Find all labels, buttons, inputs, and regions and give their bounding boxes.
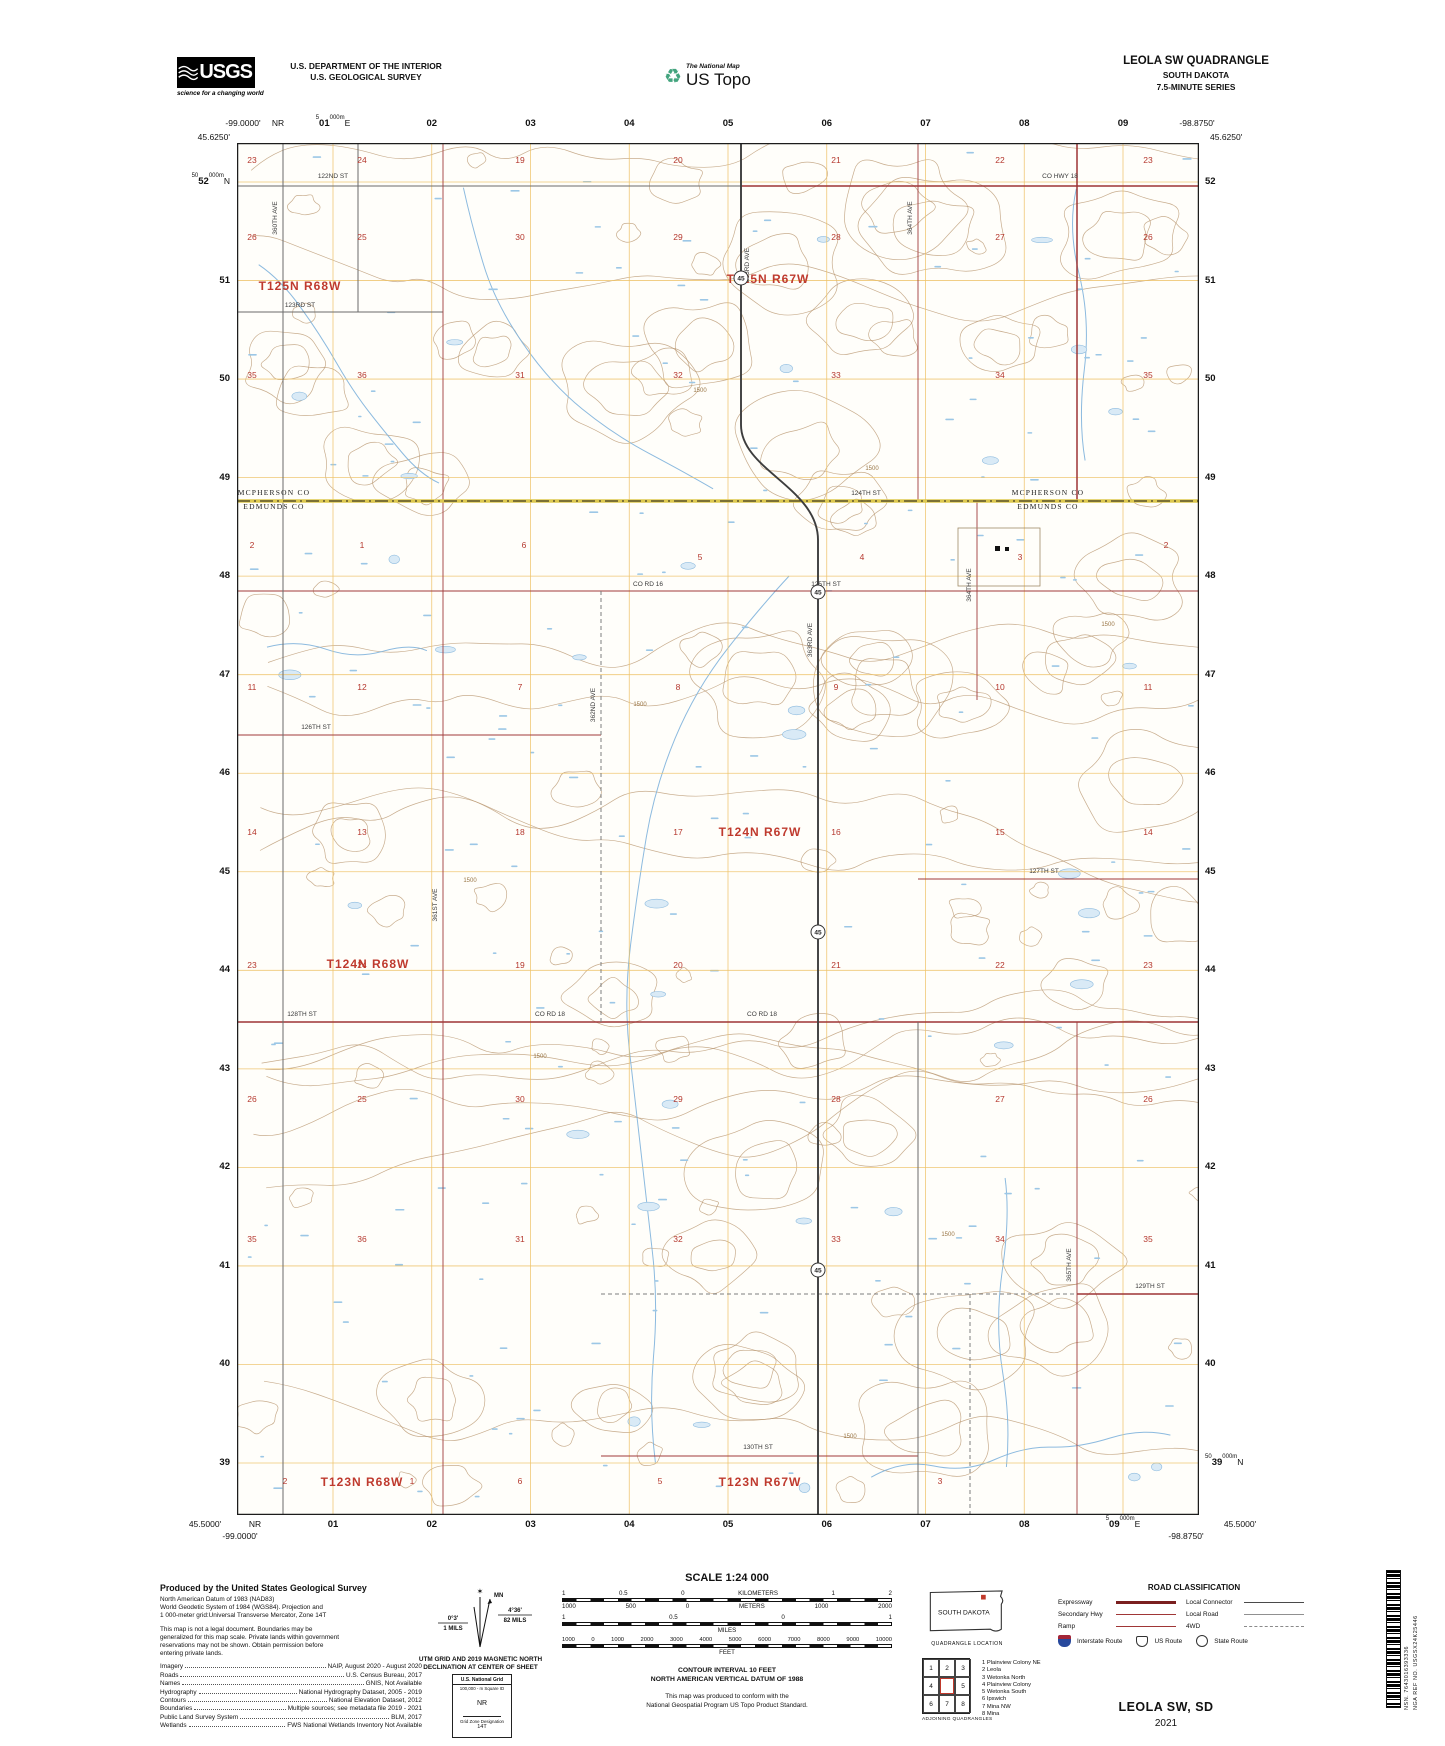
contour-interval-note: CONTOUR INTERVAL 10 FEET NORTH AMERICAN …	[562, 1666, 892, 1684]
road-label: 123RD ST	[285, 302, 315, 309]
topo-map: 2324192021222326253029282726353631323334…	[237, 143, 1199, 1515]
dept-line1: U.S. DEPARTMENT OF THE INTERIOR	[266, 61, 466, 72]
adjoining-list: 1 Plainview Colony NE2 Leola3 Wetonka No…	[982, 1660, 1041, 1718]
corner-lon-sw: -99.0000'	[222, 1531, 257, 1541]
dotted-leader	[189, 1726, 286, 1727]
declination-caption: UTM GRID AND 2019 MAGNETIC NORTH DECLINA…	[398, 1656, 563, 1672]
corner-lat-sw: 45.5000'	[189, 1519, 221, 1529]
corner-lat-ne: 45.6250'	[1210, 132, 1242, 142]
map-labels: 2324192021222326253029282726353631323334…	[238, 155, 1169, 1489]
township-label: T124N R67W	[719, 825, 802, 839]
shield-legend-label: State Route	[1214, 1638, 1248, 1645]
section-number: 21	[831, 960, 841, 970]
section-number: 14	[1143, 827, 1153, 837]
state-route-circle-icon	[1196, 1635, 1208, 1647]
conformance-note: This map was produced to conform with th…	[562, 1693, 892, 1710]
building	[1005, 547, 1009, 551]
scale-tick: 0.5	[619, 1590, 628, 1597]
road-class-label: Expressway	[1058, 1599, 1116, 1606]
grid-label-right: 44	[1205, 964, 1216, 975]
county-label: EDMUNDS CO	[1017, 502, 1078, 511]
section-number: 7	[518, 682, 523, 692]
grid-label-left: 42	[163, 1161, 230, 1172]
credits-datum-line: North American Datum of 1983 (NAD83)	[160, 1596, 422, 1604]
sheet-title-block: LEOLA SW, SD 2021	[1106, 1700, 1226, 1729]
scale-title: SCALE 1:24 000	[562, 1572, 892, 1584]
scale-tick: 8000	[817, 1637, 830, 1643]
road-label: 130TH ST	[743, 1444, 773, 1451]
section-number: 34	[995, 1234, 1005, 1244]
source-value: GNIS, Not Available	[366, 1680, 422, 1688]
dotted-leader	[185, 1667, 326, 1668]
grid-label-top: 02	[426, 118, 437, 129]
grid-label-top: 05	[723, 118, 734, 129]
source-key: Names	[160, 1680, 180, 1688]
grid-label-top: 501000mE	[316, 118, 351, 129]
national-map-label: The National Map	[686, 63, 751, 70]
scale-tick: 1000	[562, 1637, 575, 1643]
section-number: 10	[995, 682, 1005, 692]
section-number: 6	[518, 1476, 523, 1486]
section-number: 2	[1164, 540, 1169, 550]
usng-divider	[463, 1716, 501, 1717]
grid-label-right: 43	[1205, 1063, 1216, 1074]
scale-tick: 1	[562, 1590, 565, 1597]
quad-series: 7.5-MINUTE SERIES	[1106, 82, 1286, 92]
adjoining-cell: 4	[923, 1677, 939, 1695]
grid-label-right: 47	[1205, 669, 1216, 680]
usgs-wave-icon	[177, 62, 199, 84]
source-key: Public Land Survey System	[160, 1714, 238, 1722]
section-number: 19	[515, 960, 525, 970]
national-map-icon: ♻	[664, 67, 682, 87]
conformance-line1: This map was produced to conform with th…	[562, 1693, 892, 1702]
contour-elevation-label: 1500	[633, 702, 647, 708]
section-number: 36	[357, 1234, 367, 1244]
grid-label-bottom: 04	[624, 1519, 635, 1530]
road-class-row: Ramp4WD	[1058, 1623, 1330, 1630]
credits-legal-line: reservations may not be shown. Obtain pe…	[160, 1642, 422, 1650]
grid-label-left: 45	[163, 866, 230, 877]
section-number: 6	[522, 540, 527, 550]
scale-km-labels: 10.50KILOMETERS12	[562, 1590, 892, 1597]
section-number: 29	[673, 232, 683, 242]
road-label: CO RD 18	[747, 1011, 777, 1018]
section-number: 3	[938, 1476, 943, 1486]
section-number: 2	[250, 540, 255, 550]
section-number: 22	[995, 960, 1005, 970]
grid-label-right: 50	[1205, 373, 1216, 384]
grid-label-bottom: 02	[426, 1519, 437, 1530]
township-label: T124N R68W	[327, 957, 410, 971]
road-label: 364TH AVE	[966, 568, 973, 602]
source-value: National Hydrography Dataset, 2005 - 201…	[299, 1689, 422, 1697]
section-number: 33	[831, 1234, 841, 1244]
section-number: 13	[357, 827, 367, 837]
scale-tick: 10000	[876, 1637, 892, 1643]
barcode	[1386, 1570, 1401, 1708]
shield-legend-label: Interstate Route	[1077, 1638, 1122, 1645]
route-shield-legend: Interstate RouteUS RouteState Route	[1058, 1635, 1330, 1647]
dotted-leader	[199, 1693, 297, 1694]
grid-label-bottom: 06	[821, 1519, 832, 1530]
section-number: 30	[515, 232, 525, 242]
grid-label-top: 08	[1019, 118, 1030, 129]
credits-source-row: ContoursNational Elevation Dataset, 2012	[160, 1697, 422, 1705]
section-number: 2	[283, 1476, 288, 1486]
credits-source-row: BoundariesMultiple sources; see metadata…	[160, 1705, 422, 1713]
road-class-sample	[1244, 1626, 1304, 1627]
dept-line2: U.S. GEOLOGICAL SURVEY	[266, 72, 466, 83]
state-route-number: 45	[814, 1267, 822, 1274]
section-number: 32	[673, 1234, 683, 1244]
scale-tick: 0	[686, 1603, 689, 1610]
scale-tick: 7000	[788, 1637, 801, 1643]
section-number: 23	[247, 155, 257, 165]
dotted-leader	[180, 1676, 343, 1677]
quad-state: SOUTH DAKOTA	[1106, 70, 1286, 80]
adjoining-quad-name: 2 Leola	[982, 1667, 1041, 1674]
section-number: 25	[357, 1094, 367, 1104]
section-number: 23	[1143, 155, 1153, 165]
section-number: 8	[676, 682, 681, 692]
road-label: 364TH AVE	[907, 201, 914, 235]
declination-caption-line1: UTM GRID AND 2019 MAGNETIC NORTH	[398, 1656, 563, 1664]
quadrangle-title: LEOLA SW QUADRANGLE SOUTH DAKOTA 7.5-MIN…	[1106, 55, 1286, 92]
section-number: 1	[410, 1476, 415, 1486]
usng-square-label: 100,000 - m Square ID	[453, 1685, 511, 1691]
department-heading: U.S. DEPARTMENT OF THE INTERIOR U.S. GEO…	[266, 61, 466, 83]
credits-legal: This map is not a legal document. Bounda…	[160, 1626, 422, 1659]
source-key: Imagery	[160, 1663, 183, 1671]
adjoining-cell: 1	[923, 1659, 939, 1677]
road-label: 363RD AVE	[807, 622, 814, 657]
township-label: T123N R68W	[321, 1475, 404, 1489]
state-locator: SOUTH DAKOTA	[928, 1588, 1006, 1641]
corner-lat-nw: 45.6250'	[160, 132, 230, 142]
section-number: 33	[831, 370, 841, 380]
adjoining-quad-name: 4 Plainview Colony	[982, 1682, 1041, 1689]
grid-label-right: 52	[1205, 176, 1216, 187]
scale-tick: 3000	[670, 1637, 683, 1643]
svg-text:4°36': 4°36'	[508, 1608, 522, 1614]
section-number: 11	[1144, 682, 1153, 692]
svg-text:1 MILS: 1 MILS	[443, 1626, 462, 1632]
section-number: 12	[357, 682, 367, 692]
adjoining-quad-name: 3 Wetonka North	[982, 1675, 1041, 1682]
declination-caption-line2: DECLINATION AT CENTER OF SHEET	[398, 1664, 563, 1672]
svg-text:0°3': 0°3'	[448, 1616, 459, 1622]
scale-tick: 1000	[611, 1637, 624, 1643]
section-number: 15	[995, 827, 1005, 837]
grid-label-right: 45	[1205, 866, 1216, 877]
section-number: 36	[357, 370, 367, 380]
corner-lon-se: -98.8750'	[1168, 1531, 1203, 1541]
sheet-name: LEOLA SW, SD	[1106, 1700, 1226, 1714]
grid-label-left: 43	[163, 1063, 230, 1074]
grid-label-bottom: 07	[920, 1519, 931, 1530]
section-number: 32	[673, 370, 683, 380]
road-class-label: 4WD	[1186, 1623, 1244, 1630]
grid-label-top: 04	[624, 118, 635, 129]
section-number: 4	[860, 552, 865, 562]
scale-tick: 500	[626, 1603, 636, 1610]
contour-line1: CONTOUR INTERVAL 10 FEET	[562, 1666, 892, 1675]
contour-elevation-label: 1500	[463, 878, 477, 884]
grid-label-left: 51	[163, 275, 230, 286]
sheet-year: 2021	[1106, 1718, 1226, 1729]
scale-tick: 2	[889, 1590, 892, 1597]
scale-tick: METERS	[739, 1603, 765, 1610]
usgs-topo-sheet: USGS science for a changing world U.S. D…	[0, 0, 1445, 1746]
section-number: 27	[995, 1094, 1005, 1104]
scale-tick: 0	[681, 1590, 684, 1597]
interstate-shield-icon	[1058, 1635, 1071, 1647]
road-class-row: ExpresswayLocal Connector	[1058, 1599, 1330, 1606]
adjoining-quad-name: 8 Mina	[982, 1711, 1041, 1718]
scale-tick: 6000	[758, 1637, 771, 1643]
grid-label-right: 48	[1205, 570, 1216, 581]
road-classification: ROAD CLASSIFICATION ExpresswayLocal Conn…	[1058, 1583, 1330, 1647]
adjoining-quad-name: 5 Wetonka South	[982, 1689, 1041, 1696]
scale-tick: 2000	[878, 1603, 892, 1610]
adjoining-cell: 5	[955, 1677, 971, 1695]
adjoining-grid: 12345678	[922, 1658, 970, 1714]
adjoining-quad-name: 1 Plainview Colony NE	[982, 1660, 1041, 1667]
county-label: MCPHERSON CO	[1012, 488, 1085, 497]
credits-source-row: ImageryNAIP, August 2020 - August 2020	[160, 1663, 422, 1671]
section-number: 21	[831, 155, 841, 165]
barcode-nsn: NSN. 7643016393336	[1404, 1560, 1410, 1710]
grid-label-left: 48	[163, 570, 230, 581]
road-label: 360TH AVE	[272, 201, 279, 235]
township-label: T125N R68W	[259, 279, 342, 293]
section-number: 29	[673, 1094, 683, 1104]
adjoining-cell: 3	[955, 1659, 971, 1677]
credits-datum-line: 1 000-meter grid:Universal Transverse Me…	[160, 1612, 422, 1620]
section-number: 35	[1143, 1234, 1153, 1244]
credits-source-row: RoadsU.S. Census Bureau, 2017	[160, 1672, 422, 1680]
scale-tick: 1000	[815, 1603, 829, 1610]
source-key: Boundaries	[160, 1705, 192, 1713]
adjoining-quad-name: 7 Mina NW	[982, 1704, 1041, 1711]
grid-label-top: 07	[920, 118, 931, 129]
section-number: 27	[995, 232, 1005, 242]
grid-label-right: 42	[1205, 1161, 1216, 1172]
quad-location-marker	[981, 1595, 986, 1600]
county-label: EDMUNDS CO	[243, 502, 304, 511]
building	[995, 546, 1000, 551]
svg-text:82 MILS: 82 MILS	[504, 1618, 527, 1624]
road-label: 365TH AVE	[1066, 1248, 1073, 1282]
road-class-label: Ramp	[1058, 1623, 1116, 1630]
state-name: SOUTH DAKOTA	[938, 1609, 990, 1616]
state-route-number: 45	[814, 589, 822, 596]
section-number: 1	[360, 540, 365, 550]
scale-tick: 5000	[729, 1637, 742, 1643]
scale-tick: 0	[591, 1637, 594, 1643]
road-class-sample	[1116, 1614, 1176, 1616]
source-value: FWS National Wetlands Inventory Not Avai…	[287, 1722, 422, 1730]
south-dakota-outline: SOUTH DAKOTA	[928, 1588, 1006, 1636]
road-label: 361ST AVE	[432, 888, 439, 922]
credits-sources: ImageryNAIP, August 2020 - August 2020Ro…	[160, 1663, 422, 1730]
section-number: 17	[673, 827, 683, 837]
barcode-nga-ref: NGA REF NO. USGSX24K25446	[1413, 1560, 1419, 1710]
township-label: T123N R67W	[719, 1475, 802, 1489]
credits-source-row: HydrographyNational Hydrography Dataset,…	[160, 1689, 422, 1697]
road-classification-title: ROAD CLASSIFICATION	[1058, 1583, 1330, 1592]
section-number: 14	[247, 827, 257, 837]
grid-label-right: 49	[1205, 472, 1216, 483]
grid-label-left: 46	[163, 767, 230, 778]
usng-zone-value: 14T	[453, 1724, 511, 1730]
road-classification-rows: ExpresswayLocal ConnectorSecondary HwyLo…	[1058, 1599, 1330, 1630]
usng-title: U.S. National Grid	[453, 1675, 511, 1685]
adjoining-quad-name: 6 Ipswich	[982, 1696, 1041, 1703]
usng-square-id: NR	[453, 1700, 511, 1707]
scale-tick: KILOMETERS	[738, 1590, 778, 1597]
section-number: 23	[247, 960, 257, 970]
conformance-line2: National Geospatial Program US Topo Prod…	[562, 1702, 892, 1711]
source-value: Multiple sources; see metadata file 2019…	[288, 1705, 422, 1713]
adjoining-cell: 8	[955, 1695, 971, 1713]
road-class-sample	[1116, 1626, 1176, 1627]
us-topo-label: US Topo	[686, 70, 751, 90]
section-number: 5	[698, 552, 703, 562]
road-label: 129TH ST	[1135, 1283, 1165, 1290]
grid-label-top: 03	[525, 118, 536, 129]
grid-label-top: 09	[1118, 118, 1129, 129]
corner-lat-se: 45.5000'	[1224, 1519, 1256, 1529]
contour-elevation-label: 1500	[843, 1434, 857, 1440]
scale-ft-bar	[562, 1644, 892, 1648]
section-number: 26	[247, 232, 257, 242]
credits-title: Produced by the United States Geological…	[160, 1583, 422, 1593]
grid-label-left: 47	[163, 669, 230, 680]
section-number: 34	[995, 370, 1005, 380]
grid-label-right: 51	[1205, 275, 1216, 286]
grid-square-id-bottom: NR	[249, 1519, 261, 1529]
scale-tick: 1000	[562, 1603, 576, 1610]
us-route-shield-icon	[1136, 1636, 1148, 1647]
credits-source-row: WetlandsFWS National Wetlands Inventory …	[160, 1722, 422, 1730]
source-value: BLM, 2017	[391, 1714, 422, 1722]
road-label: 128TH ST	[287, 1011, 317, 1018]
road-label: 122ND ST	[318, 173, 348, 180]
section-number: 3	[1018, 552, 1023, 562]
usgs-logo: USGS	[177, 57, 255, 88]
usng-box: U.S. National Grid 100,000 - m Square ID…	[452, 1674, 512, 1738]
credits-datum-line: World Geodetic System of 1984 (WGS84). P…	[160, 1604, 422, 1612]
road-label: 124TH ST	[851, 490, 881, 497]
shield-legend-label: US Route	[1154, 1638, 1182, 1645]
road-label: 362ND AVE	[590, 687, 597, 722]
road-label: 127TH ST	[1029, 868, 1059, 875]
scale-tick: 0.5	[669, 1614, 678, 1621]
credits-datum: North American Datum of 1983 (NAD83)Worl…	[160, 1596, 422, 1621]
scale-mi-labels: 10.501	[562, 1614, 892, 1621]
scale-tick: 1	[832, 1590, 835, 1597]
section-number: 26	[1143, 232, 1153, 242]
scale-ft-unit: FEET	[562, 1649, 892, 1656]
contour-elevation-label: 1500	[693, 388, 707, 394]
road-label: CO HWY 18	[1042, 173, 1078, 180]
section-number: 16	[831, 827, 841, 837]
source-key: Roads	[160, 1672, 178, 1680]
scale-tick: 4000	[699, 1637, 712, 1643]
magnetic-north-label: MN	[494, 1593, 503, 1599]
source-key: Wetlands	[160, 1722, 187, 1730]
section-number: 19	[515, 155, 525, 165]
grid-label-right: 40	[1205, 1358, 1216, 1369]
grid-label-right: 41	[1205, 1260, 1216, 1271]
quadrangle-location-caption: QUADRANGLE LOCATION	[905, 1641, 1029, 1647]
road-label: 126TH ST	[301, 724, 331, 731]
state-route-number: 45	[814, 929, 822, 936]
section-number: 28	[831, 1094, 841, 1104]
section-number: 30	[515, 1094, 525, 1104]
section-number: 35	[1143, 370, 1153, 380]
scale-tick: 0	[781, 1614, 784, 1621]
contour-elevation-label: 1500	[941, 1232, 955, 1238]
usgs-logo-text: USGS	[199, 61, 252, 84]
road-class-label: Local Connector	[1186, 1599, 1244, 1606]
scale-tick: 2000	[641, 1637, 654, 1643]
section-number: 31	[515, 370, 525, 380]
scale-tick: 9000	[846, 1637, 859, 1643]
credits-legal-line: entering private lands.	[160, 1650, 422, 1658]
road-class-sample	[1244, 1614, 1304, 1615]
dotted-leader	[182, 1684, 363, 1685]
section-number: 26	[247, 1094, 257, 1104]
road-class-label: Local Road	[1186, 1611, 1244, 1618]
grid-label-right: 5039000mN	[1205, 1457, 1243, 1468]
state-route-number: 45	[737, 275, 745, 282]
source-value: National Elevation Dataset, 2012	[329, 1697, 422, 1705]
svg-text:✶: ✶	[477, 1587, 484, 1596]
dotted-leader	[194, 1709, 285, 1710]
section-number: 35	[247, 370, 257, 380]
section-number: 18	[515, 827, 525, 837]
grid-square-id-top: NR	[272, 118, 284, 128]
grid-label-bottom: 509000mE	[1106, 1519, 1141, 1530]
grid-label-left: 5052000mN	[163, 176, 230, 187]
adjoining-cell: 2	[939, 1659, 955, 1677]
grid-label-right: 46	[1205, 767, 1216, 778]
contour-elevation-label: 1500	[533, 1054, 547, 1060]
county-label: MCPHERSON CO	[238, 488, 311, 497]
scale-block: SCALE 1:24 000 10.50KILOMETERS12 1000500…	[562, 1572, 892, 1710]
section-number: 23	[1143, 960, 1153, 970]
section-number: 35	[247, 1234, 257, 1244]
credits-legal-line: This map is not a legal document. Bounda…	[160, 1626, 422, 1634]
scale-ft-labels: 1000010002000300040005000600070008000900…	[562, 1637, 892, 1643]
credits-legal-line: generalized for this map scale. Private …	[160, 1634, 422, 1642]
road-label: CO RD 18	[535, 1011, 565, 1018]
scale-mi-bar	[562, 1622, 892, 1626]
source-value: U.S. Census Bureau, 2017	[346, 1672, 422, 1680]
section-number: 22	[995, 155, 1005, 165]
contour-line2: NORTH AMERICAN VERTICAL DATUM OF 1988	[562, 1675, 892, 1684]
section-number: 26	[1143, 1094, 1153, 1104]
grid-label-left: 50	[163, 373, 230, 384]
road-class-sample	[1244, 1602, 1304, 1604]
road-label: CO RD 16	[633, 581, 663, 588]
scale-km-bar	[562, 1598, 892, 1602]
section-number: 28	[831, 232, 841, 242]
corner-lon-nw: -99.0000'	[225, 118, 260, 128]
